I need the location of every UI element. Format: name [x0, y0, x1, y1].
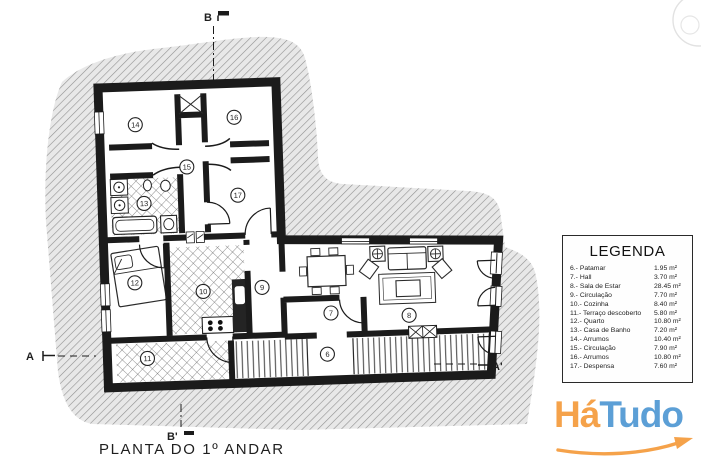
chair: [299, 267, 306, 276]
legend-room-area: 10.40 m²: [654, 336, 687, 345]
legend-room-name: 7.- Hall: [570, 274, 654, 283]
room-label-7: 7: [324, 306, 338, 320]
legend-title: LEGENDA: [563, 243, 692, 260]
legend-room-name: 9.- Circulação: [570, 292, 654, 301]
stove: [202, 316, 234, 333]
legend-room-area: 7.60 m²: [654, 363, 687, 372]
watermark-circle: [673, 0, 701, 46]
legend-room-area: 1.95 m²: [654, 265, 687, 274]
svg-text:13: 13: [140, 199, 149, 208]
legend-room-area: 3.70 m²: [654, 274, 687, 283]
svg-text:17: 17: [234, 191, 243, 200]
legend-room-area: 7.70 m²: [654, 292, 687, 301]
logo-swoosh-arrow: [556, 436, 696, 458]
logo-tudo: Tudo: [599, 394, 683, 435]
stair-flight-right: [354, 334, 490, 375]
svg-text:8: 8: [407, 311, 411, 320]
legend-row: 11.- Terraço descoberto5.80 m²: [563, 310, 692, 319]
logo-ha: Há: [554, 394, 599, 435]
coffee-table: [396, 280, 421, 297]
hatudo-logo: HáTudo: [554, 396, 701, 466]
room-label-17: 17: [231, 188, 245, 202]
legend-room-name: 10.- Cozinha: [570, 301, 654, 310]
svg-text:11: 11: [143, 354, 151, 363]
legend-room-name: 11.- Terraço descoberto: [570, 310, 654, 319]
svg-text:12: 12: [131, 278, 140, 287]
svg-text:9: 9: [260, 283, 264, 292]
legend-room-name: 17.- Despensa: [570, 363, 654, 372]
terrace-floor: [116, 341, 231, 383]
dining-table: [307, 255, 346, 286]
bidet: [143, 180, 151, 191]
chair: [330, 287, 339, 294]
room-label-13: 13: [137, 196, 151, 210]
legend-room-name: 16.- Arrumos: [570, 354, 654, 363]
hatudo-logo-text: HáTudo: [554, 396, 701, 433]
legend-row: 7.- Hall3.70 m²: [563, 274, 692, 283]
svg-text:15: 15: [182, 163, 191, 172]
legend-room-area: 10.80 m²: [654, 318, 687, 327]
svg-text:7: 7: [329, 309, 333, 318]
svg-text:16: 16: [230, 113, 239, 122]
legend-room-name: 14.- Arrumos: [570, 336, 654, 345]
legend-room-area: 10.80 m²: [654, 354, 687, 363]
legend-row: 12.- Quarto10.80 m²: [563, 318, 692, 327]
room-label-6: 6: [320, 347, 334, 361]
legend-room-area: 8.40 m²: [654, 301, 687, 310]
legend-row: 9.- Circulação7.70 m²: [563, 292, 692, 301]
legend-row: 17.- Despensa7.60 m²: [563, 363, 692, 372]
chair: [311, 248, 320, 255]
legend-row: 15.- Circulação7.90 m²: [563, 345, 692, 354]
section-label-a-prime: A': [492, 361, 503, 373]
section-label-a: A: [26, 351, 34, 363]
legend-row: 8.- Sala de Estar28.45 m²: [563, 283, 692, 292]
room-label-10: 10: [196, 284, 210, 298]
room-label-9: 9: [255, 280, 269, 294]
legend-room-name: 15.- Circulação: [570, 345, 654, 354]
svg-text:10: 10: [199, 287, 208, 296]
legend-row: 14.- Arrumos10.40 m²: [563, 336, 692, 345]
legend-row: 13.- Casa de Banho7.20 m²: [563, 327, 692, 336]
legend-room-area: 28.45 m²: [654, 283, 687, 292]
legend-room-area: 5.80 m²: [654, 310, 687, 319]
legend-row: 10.- Cozinha8.40 m²: [563, 301, 692, 310]
legend-room-area: 7.90 m²: [654, 345, 687, 354]
room-label-8: 8: [402, 308, 416, 322]
legend-room-area: 7.20 m²: [654, 327, 687, 336]
toilet: [160, 180, 170, 191]
legend-row: 6.- Patamar1.95 m²: [563, 265, 692, 274]
legend-room-name: 13.- Casa de Banho: [570, 327, 654, 336]
plan-title: PLANTA DO 1º ANDAR: [99, 441, 285, 458]
legend-row: 16.- Arrumos10.80 m²: [563, 354, 692, 363]
legend-room-name: 6.- Patamar: [570, 265, 654, 274]
room-label-16: 16: [227, 110, 241, 124]
room-label-15: 15: [180, 160, 194, 174]
room-label-12: 12: [128, 276, 142, 290]
room-label-11: 11: [140, 351, 154, 365]
legend-room-name: 12.- Quarto: [570, 318, 654, 327]
room-label-14: 14: [128, 117, 142, 131]
chair: [329, 248, 338, 255]
vent-window: [409, 325, 437, 338]
legend-room-name: 8.- Sala de Estar: [570, 283, 654, 292]
chair: [346, 265, 353, 274]
svg-text:14: 14: [131, 120, 140, 129]
legend-box: LEGENDA 6.- Patamar1.95 m² 7.- Hall3.70 …: [562, 235, 693, 383]
stair-flight-left: [234, 339, 307, 378]
legend-rows: 6.- Patamar1.95 m² 7.- Hall3.70 m² 8.- S…: [563, 265, 692, 372]
chair: [312, 287, 321, 294]
section-label-b: B: [204, 12, 212, 24]
svg-text:6: 6: [325, 350, 329, 359]
